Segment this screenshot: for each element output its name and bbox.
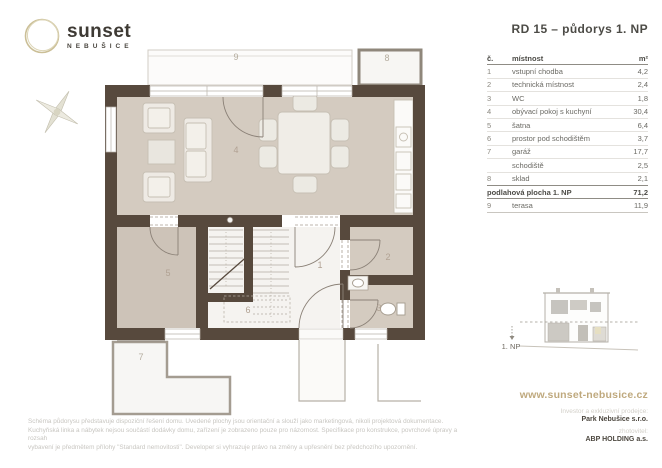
room-name: WC [512, 94, 620, 103]
table-row: 1 vstupní chodba 4,2 [487, 65, 648, 78]
room-number: 3 [487, 94, 512, 103]
room-number: 1 [487, 67, 512, 76]
toilet [381, 303, 396, 315]
room-number: 2 [487, 80, 512, 89]
investor-name: Park Nebušice s.r.o. [561, 416, 648, 423]
room-name: vstupní chodba [512, 67, 620, 76]
room-area: 1,8 [620, 94, 648, 103]
col-header-room: místnost [512, 54, 620, 63]
room-area: 2,5 [620, 161, 648, 170]
table-header-row: č. místnost m² [487, 52, 648, 65]
room-name: sklad [512, 174, 620, 183]
room-area: 4,2 [620, 67, 648, 76]
house-elevation: 1. NP [502, 288, 638, 351]
terrace-outline [148, 50, 352, 85]
total-label: podlahová plocha 1. NP [487, 188, 620, 197]
table-row: 3 WC 1,8 [487, 92, 648, 105]
col-header-area: m² [620, 54, 648, 63]
room-number: 8 [487, 174, 512, 183]
room-number: 9 [487, 201, 512, 210]
logo-name: sunset [67, 22, 133, 42]
investor-label: Investor a exkluzivní prodejce: [561, 408, 648, 415]
table-row: 4 obývací pokoj s kuchyní 30,4 [487, 106, 648, 119]
room-name: prostor pod schodištěm [512, 134, 620, 143]
garage-outline [113, 342, 230, 414]
sink [353, 279, 364, 287]
floorplan-sheet: 1 2 3 4 5 6 7 8 9 1. NP [0, 0, 662, 468]
room-label-4: 4 [233, 145, 238, 155]
room-name: terasa [512, 201, 620, 210]
builder-name: ABP HOLDING a.s. [561, 436, 648, 443]
room-number: 5 [487, 121, 512, 130]
room-label-3: 3 [376, 303, 381, 313]
room-name: schodiště [512, 161, 620, 170]
storage-outline [359, 50, 421, 85]
room-number: 7 [487, 147, 512, 156]
table-row: schodiště 2,5 [487, 159, 648, 172]
total-area: 71,2 [620, 188, 648, 197]
logo: sunset NEBUŠICE [67, 22, 133, 50]
col-header-number: č. [487, 54, 512, 63]
room-name: technická místnost [512, 80, 620, 89]
table-row: 2 technická místnost 2,4 [487, 79, 648, 92]
elevation-floor-label: 1. NP [502, 342, 521, 351]
room-label-7: 7 [138, 352, 143, 362]
room-table: č. místnost m² 1 vstupní chodba 4,2 2 te… [487, 52, 648, 213]
room-name: garáž [512, 147, 620, 156]
disclaimer-line: vybavení je předmětem přílohy "Standard … [28, 444, 473, 453]
logo-ring-icon [26, 20, 59, 53]
room-label-2: 2 [385, 252, 390, 262]
room-number: 4 [487, 107, 512, 116]
room-label-8: 8 [384, 53, 389, 63]
table-row: 5 šatna 6,4 [487, 119, 648, 132]
credits: Investor a exkluzivní prodejce: Park Neb… [561, 403, 648, 443]
room-name: šatna [512, 121, 620, 130]
room-name: obývací pokoj s kuchyní [512, 107, 620, 116]
room-area: 11,9 [620, 201, 648, 210]
room-label-1: 1 [317, 260, 322, 270]
disclaimer-text: Schéma půdorysu představuje dispoziční ř… [28, 418, 473, 452]
compass-icon [24, 79, 90, 145]
room-label-6: 6 [245, 305, 250, 315]
room-area: 6,4 [620, 121, 648, 130]
walkway-outline [299, 340, 421, 401]
table-total-row: podlahová plocha 1. NP 71,2 [487, 185, 648, 199]
logo-subtitle: NEBUŠICE [67, 43, 133, 50]
table-row: 7 garáž 17,7 [487, 146, 648, 159]
room-area: 2,1 [620, 174, 648, 183]
website-link[interactable]: www.sunset-nebusice.cz [520, 389, 648, 401]
page-title: RD 15 – půdorys 1. NP [512, 22, 648, 36]
builder-label: zhotovitel: [561, 428, 648, 435]
disclaimer-line: Kuchyňská linka a nábytek nejsou součást… [28, 427, 473, 444]
room-label-9: 9 [233, 52, 238, 62]
table-row: 6 prostor pod schodištěm 3,7 [487, 132, 648, 145]
table-row: 9 terasa 11,9 [487, 199, 648, 212]
room-area: 2,4 [620, 80, 648, 89]
disclaimer-line: Schéma půdorysu představuje dispoziční ř… [28, 418, 473, 427]
kitchen-counter [394, 100, 413, 213]
room-area: 30,4 [620, 107, 648, 116]
room-area: 3,7 [620, 134, 648, 143]
room-number: 6 [487, 134, 512, 143]
room-label-5: 5 [165, 268, 170, 278]
table-row: 8 sklad 2,1 [487, 173, 648, 185]
room-area: 17,7 [620, 147, 648, 156]
